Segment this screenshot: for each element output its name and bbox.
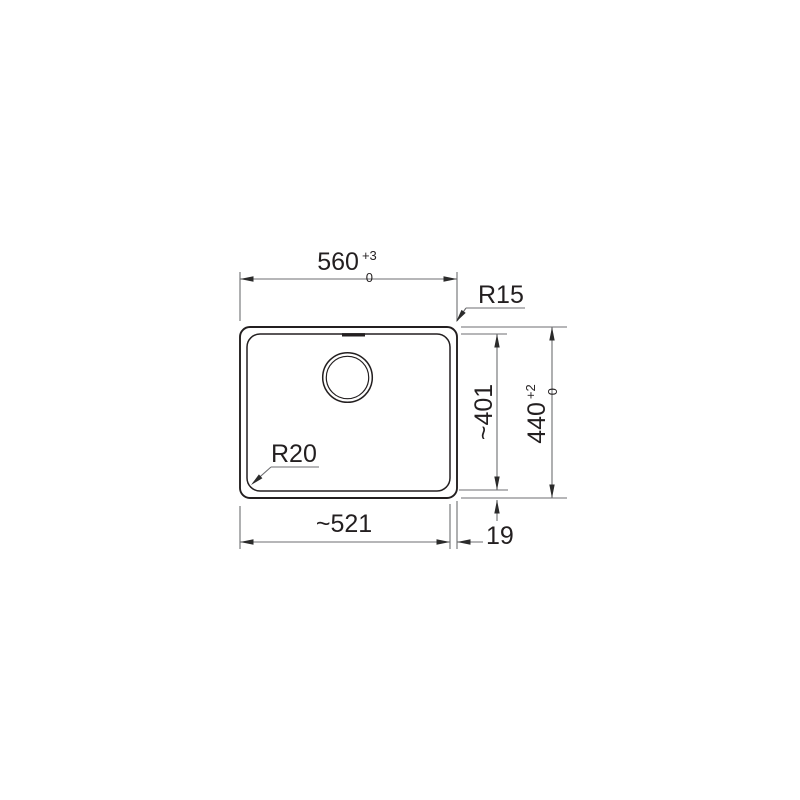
dim-outer-height-tol-lower: 0 (545, 388, 560, 395)
dim-outer-height-value: 440 (523, 402, 551, 444)
arrowhead-inner-width-left (240, 539, 254, 544)
label-inner-corner-radius: R20 (271, 440, 317, 468)
arrowhead-inner-width-right (437, 539, 451, 544)
arrowhead-rim-horizontal (457, 539, 471, 544)
arrowhead-outer-width-right (444, 276, 458, 281)
arrowhead-outer-height-top (549, 327, 554, 341)
dim-inner-height-value: ~401 (470, 384, 498, 440)
dim-inner-width-value: ~521 (316, 510, 372, 538)
dim-outer-height-text: 440+20 (523, 384, 560, 444)
sink-dimension-drawing: 560+30 R15 ~401 440+20 R20 ~521 19 (0, 0, 800, 800)
dim-outer-height-tol-upper: +2 (523, 384, 538, 399)
arrowhead-rim-vertical (494, 500, 499, 514)
dimension-lines (240, 279, 552, 542)
dim-outer-width-tol-upper: +3 (362, 248, 377, 263)
dim-outer-width-tol-lower: 0 (366, 270, 373, 285)
extension-lines (240, 272, 567, 549)
arrowheads (240, 276, 555, 544)
arrowhead-inner-height-top (494, 334, 499, 348)
drain-circle-inner (326, 356, 368, 398)
arrowhead-outer-height-bottom (549, 485, 554, 499)
dim-rim-offset-value: 19 (486, 522, 514, 550)
drain-circle-outer (323, 353, 373, 403)
technical-drawing-canvas: 560+30 R15 ~401 440+20 R20 ~521 19 (0, 0, 800, 800)
sink-body (240, 327, 457, 498)
label-outer-corner-radius: R15 (478, 281, 524, 309)
arrowhead-outer-width-left (240, 276, 254, 281)
dim-outer-width-value: 560 (317, 248, 359, 276)
arrowhead-inner-height-bottom (494, 477, 499, 491)
